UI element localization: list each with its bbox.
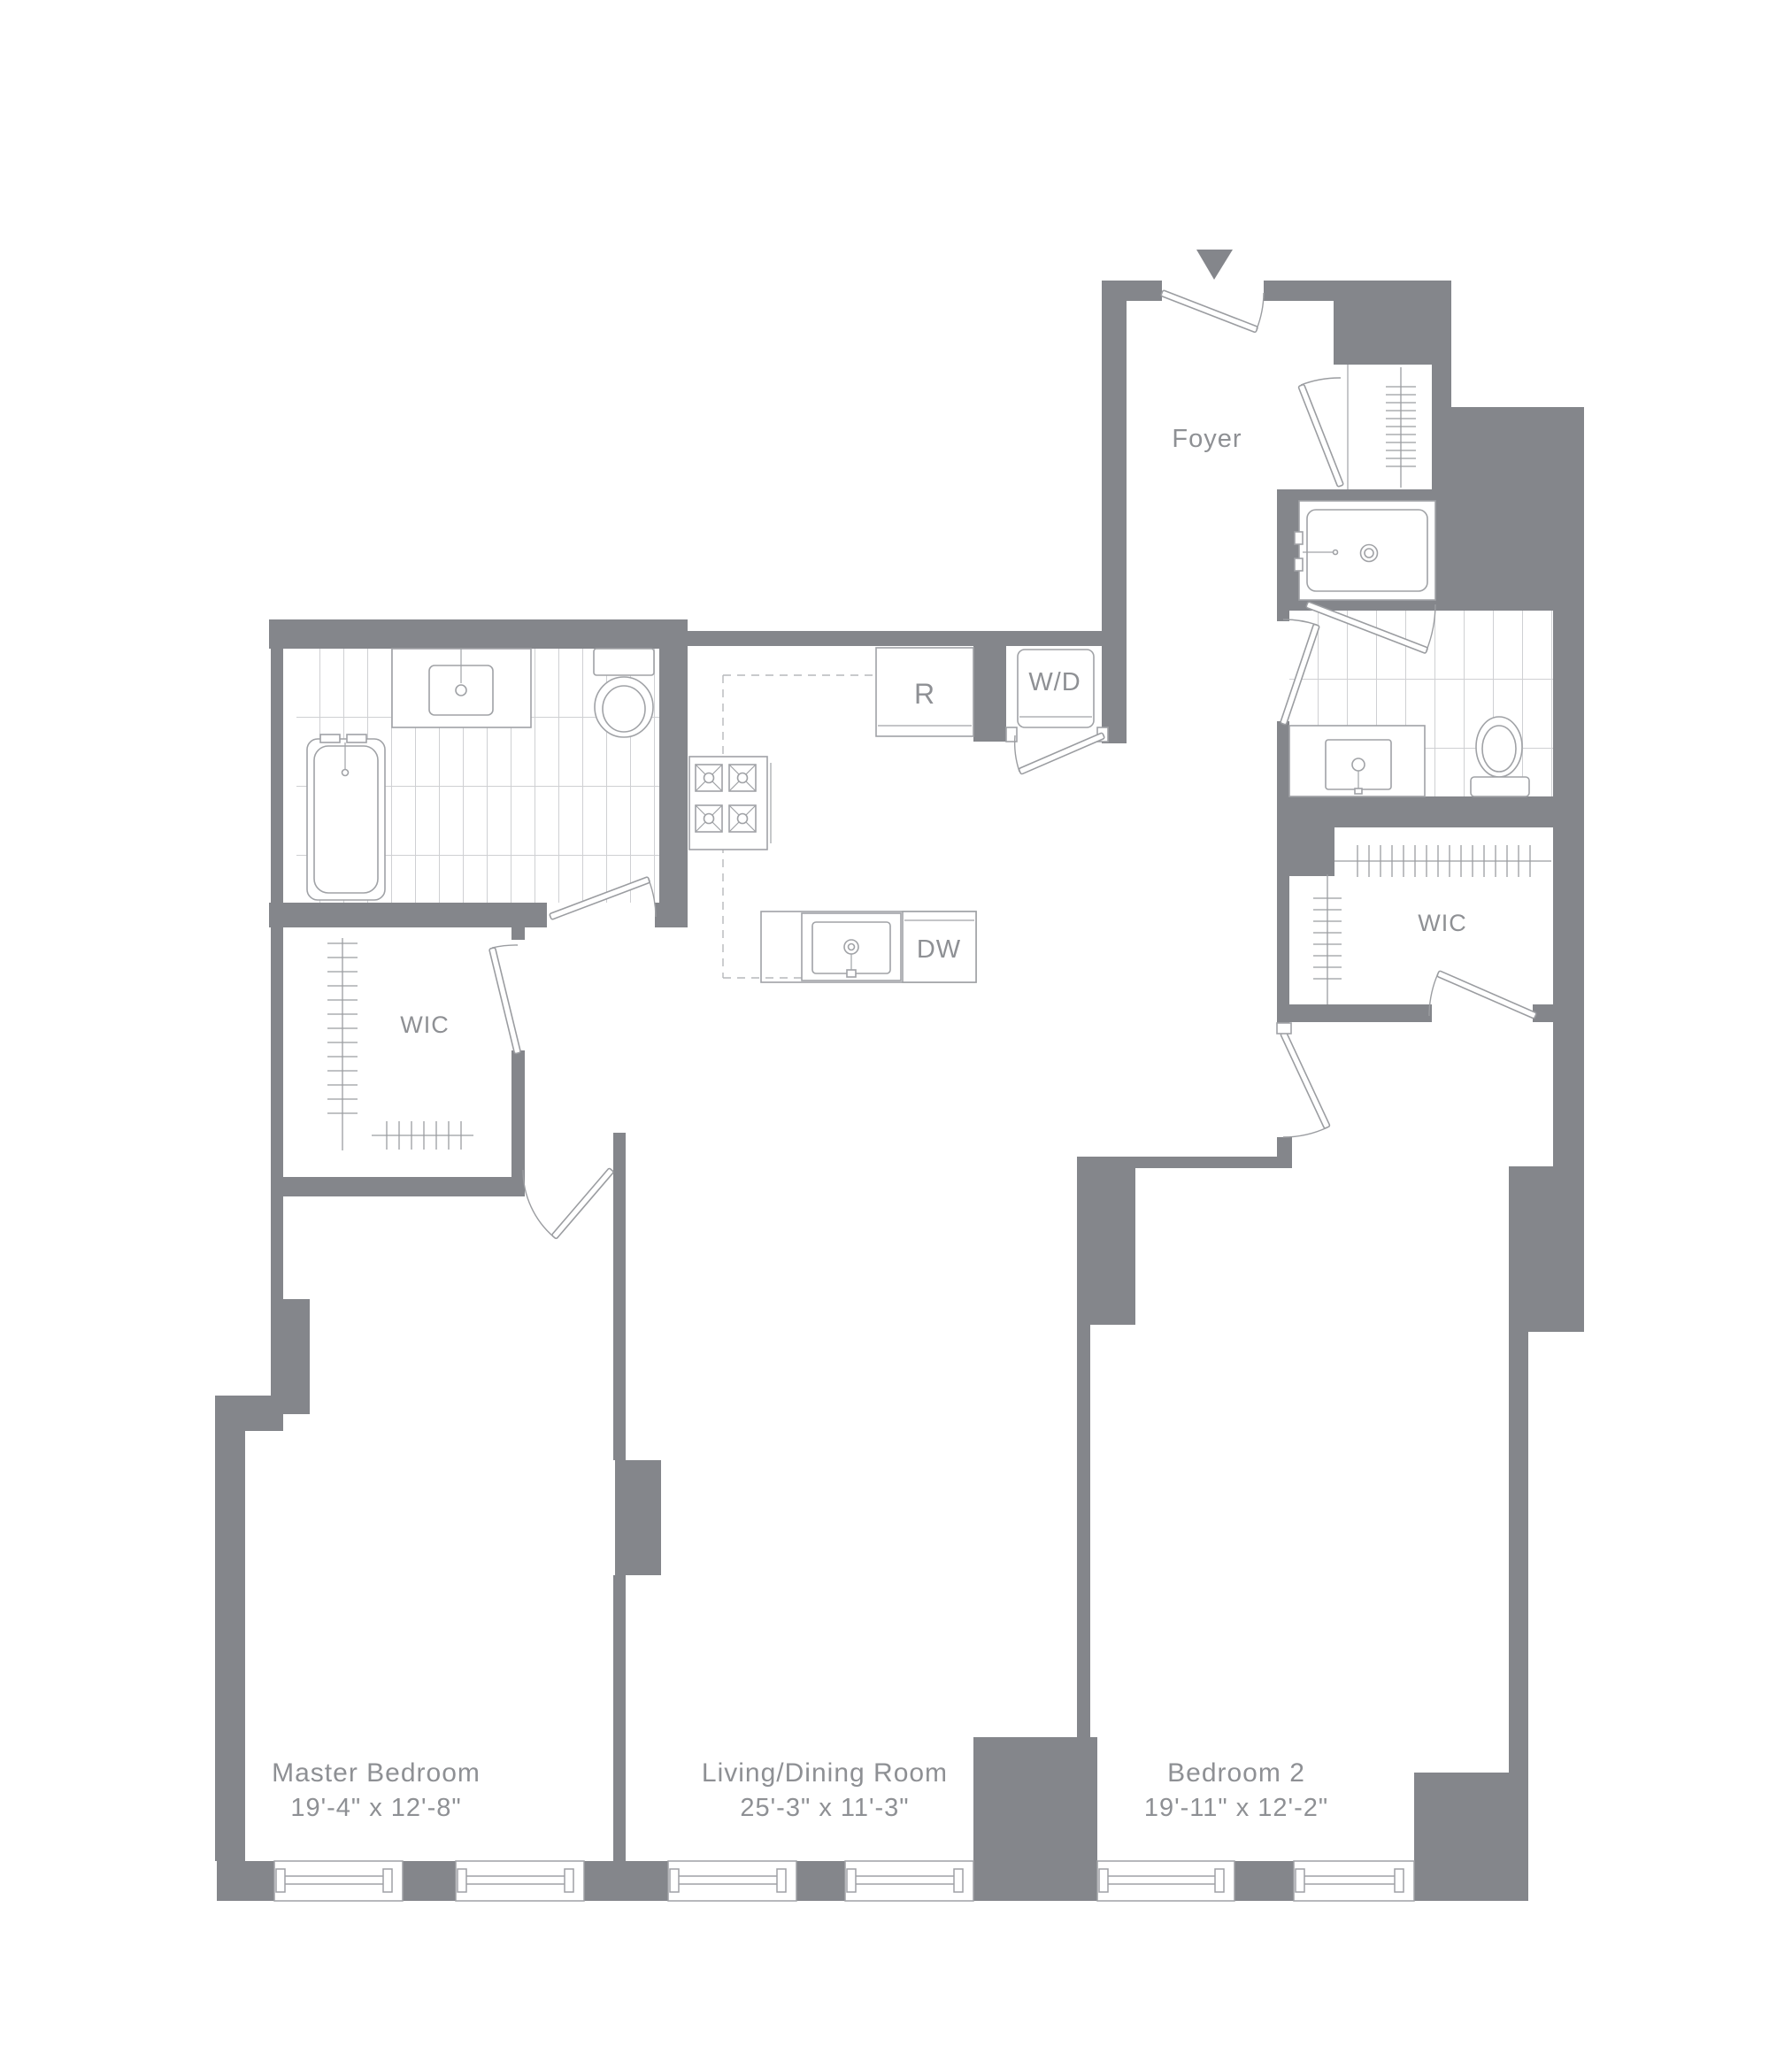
wall: [1277, 721, 1289, 1030]
bath2-vanity: [1289, 726, 1425, 796]
wall: [269, 903, 547, 927]
wall: [613, 1133, 626, 1460]
wall: [1432, 407, 1584, 611]
wall: [1102, 281, 1127, 743]
wall: [215, 1431, 245, 1861]
window: [1097, 1861, 1234, 1901]
wall: [1553, 827, 1584, 1166]
shower-valve: [1295, 532, 1303, 544]
wall: [1414, 1773, 1528, 1901]
window: [1294, 1861, 1414, 1901]
laundry-door: [1015, 733, 1105, 774]
wall: [973, 1737, 1097, 1901]
wall: [613, 1575, 626, 1861]
window: [456, 1861, 584, 1901]
master-bedroom-label: Master Bedroom: [272, 1758, 481, 1788]
shower-valve: [1295, 558, 1303, 571]
wall: [1277, 796, 1584, 827]
wall: [659, 619, 688, 927]
floor-plan: R DW W/D: [0, 0, 1792, 2046]
wall: [215, 1396, 283, 1431]
wall: [615, 1460, 661, 1575]
wall-pier: [1234, 1861, 1294, 1901]
wic-left-door: [489, 945, 521, 1054]
wall-pier: [584, 1861, 668, 1901]
closet-door: [1298, 378, 1343, 487]
wall: [271, 1177, 525, 1196]
wall-pier: [796, 1861, 845, 1901]
wall: [1277, 1004, 1432, 1022]
wall: [973, 631, 1006, 742]
wall-pier: [403, 1861, 456, 1901]
wic-right-label: WIC: [1418, 910, 1466, 936]
wic-left-label: WIC: [400, 1011, 449, 1038]
dishwasher-label: DW: [917, 935, 961, 964]
master-tub: [307, 739, 385, 900]
tub-valve: [320, 735, 340, 742]
wall: [1277, 489, 1299, 611]
master-bedroom-dims: 19'-4" x 12'-8": [290, 1794, 461, 1822]
window: [274, 1861, 403, 1901]
floor-plan-canvas: R DW W/D: [0, 0, 1792, 2046]
laundry-closet: W/D: [1006, 650, 1108, 742]
bedroom2-door: [1277, 1023, 1330, 1137]
entry-arrow-icon: [1196, 250, 1233, 280]
wall: [686, 631, 1102, 646]
foyer-closet: [1348, 365, 1416, 489]
wall: [1264, 281, 1451, 301]
foyer-label: Foyer: [1172, 425, 1242, 453]
wall: [511, 1050, 525, 1180]
wall: [511, 922, 525, 940]
wall: [271, 619, 283, 1299]
wall: [1533, 1004, 1584, 1022]
shower-base: [1299, 501, 1435, 600]
bath2-fixtures: [1289, 717, 1529, 796]
wall: [655, 903, 688, 927]
wic-left: [327, 938, 473, 1150]
window: [845, 1861, 973, 1901]
master-toilet-tank: [594, 649, 654, 675]
wall-pier: [217, 1861, 274, 1901]
window: [668, 1861, 796, 1901]
living-dining-dims: 25'-3" x 11'-3": [740, 1794, 909, 1822]
kitchen-faucet-base: [847, 970, 856, 977]
kitchen: R DW: [689, 648, 976, 982]
bath2-faucet-base: [1355, 788, 1362, 794]
shower: [1295, 501, 1435, 600]
bedroom2-dims: 19'-11" x 12'-2": [1144, 1794, 1328, 1822]
tub-valve: [347, 735, 366, 742]
master-bedroom-door: [523, 1168, 614, 1239]
refrigerator-label: R: [914, 678, 935, 710]
wall: [1432, 365, 1451, 407]
living-dining-label: Living/Dining Room: [702, 1758, 948, 1788]
wall: [1077, 1325, 1090, 1737]
wall: [1509, 1166, 1584, 1332]
wall: [1509, 1332, 1528, 1773]
wic-right-door: [1429, 971, 1536, 1019]
wall: [269, 619, 688, 649]
bedroom2-label: Bedroom 2: [1167, 1758, 1305, 1788]
washer-dryer-label: W/D: [1028, 668, 1081, 696]
wall: [1334, 301, 1451, 365]
bath2-toilet-tank: [1471, 777, 1529, 796]
wall: [1077, 1157, 1135, 1325]
entry-door: [1161, 290, 1264, 333]
door-jamb: [1277, 1023, 1291, 1034]
wall: [1289, 827, 1334, 876]
